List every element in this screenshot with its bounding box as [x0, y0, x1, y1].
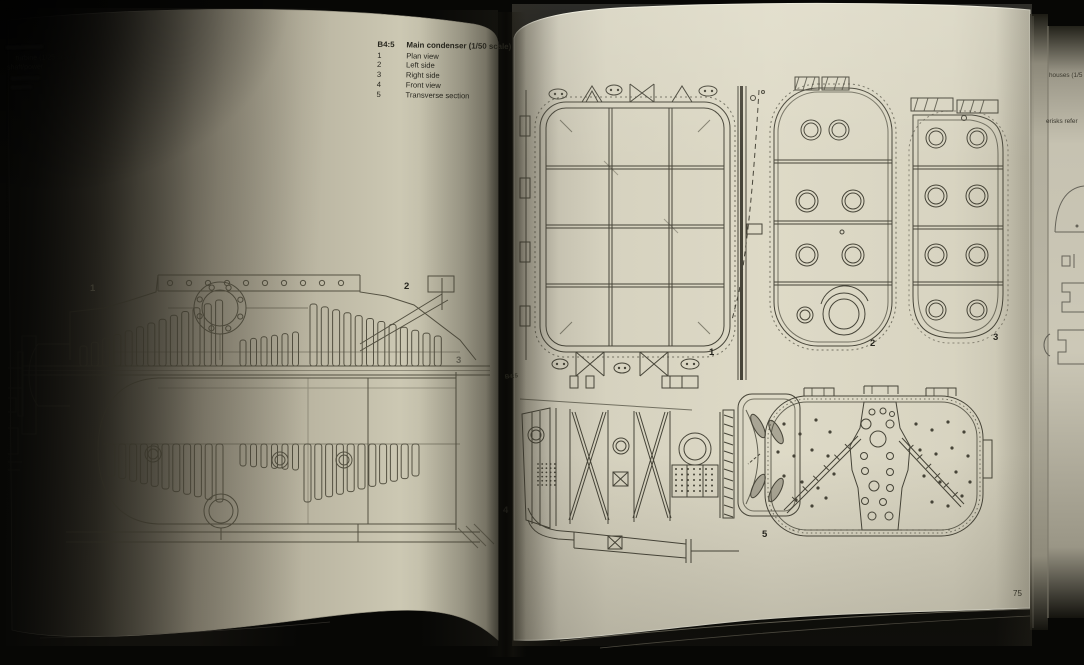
figure-label-transverse: 5: [762, 529, 767, 540]
figure-left-side: [770, 77, 896, 350]
fore-edge-text-fragment: houses (1/5: [1049, 72, 1084, 79]
book-spread-photo: turbine (1/25 scale) shaft/power B4:5 Ma…: [0, 0, 1084, 665]
figure-label: 1: [90, 283, 95, 294]
caption-item-label: Front view: [406, 80, 441, 90]
caption-item-label: Right side: [406, 70, 440, 80]
figure-label-plan: 1: [709, 347, 714, 358]
caption-item-no: 3: [377, 70, 406, 80]
left-page-caption: turbine (1/25 scale) shaft/power: [3, 42, 134, 89]
caption-item-no: 2: [377, 60, 406, 70]
fore-edge-pages: [1048, 26, 1084, 618]
figure-label-front: 4: [503, 505, 508, 516]
illegible-caption-line: [10, 76, 40, 81]
figure-label: 2: [404, 281, 409, 292]
caption-item-no: 5: [376, 89, 405, 99]
right-page-caption: B4:5 Main condenser (1/50 scale) 1Plan v…: [376, 40, 511, 102]
page-number: 75: [1013, 589, 1022, 598]
caption-item-no: 4: [377, 80, 406, 90]
figure-number: B4:5: [377, 40, 406, 50]
figure-label-left-side: 2: [870, 338, 875, 349]
caption-item-no: 1: [377, 51, 406, 61]
caption-fragment: shaft/power: [7, 60, 134, 72]
figure-plan-view: [520, 84, 765, 388]
figure-main-condenser-views: [512, 58, 1037, 614]
illegible-caption-line: [5, 45, 43, 50]
caption-item-label: Transverse section: [405, 90, 469, 101]
figure-right-side: [909, 98, 1008, 343]
caption-item-label: Plan view: [406, 51, 439, 61]
figure-turbine-section: [8, 248, 500, 578]
caption-item-label: Left side: [406, 61, 435, 71]
fore-edge-text-fragment: erisks refer: [1046, 118, 1084, 125]
figure-label: 3: [456, 355, 461, 366]
figure-front-view: [520, 394, 800, 563]
figure-title: Main condenser (1/50 scale): [406, 40, 511, 52]
figure-transverse-section: [748, 386, 992, 536]
illegible-caption-line: [10, 85, 32, 90]
figure-label-right-side: 3: [993, 332, 998, 343]
